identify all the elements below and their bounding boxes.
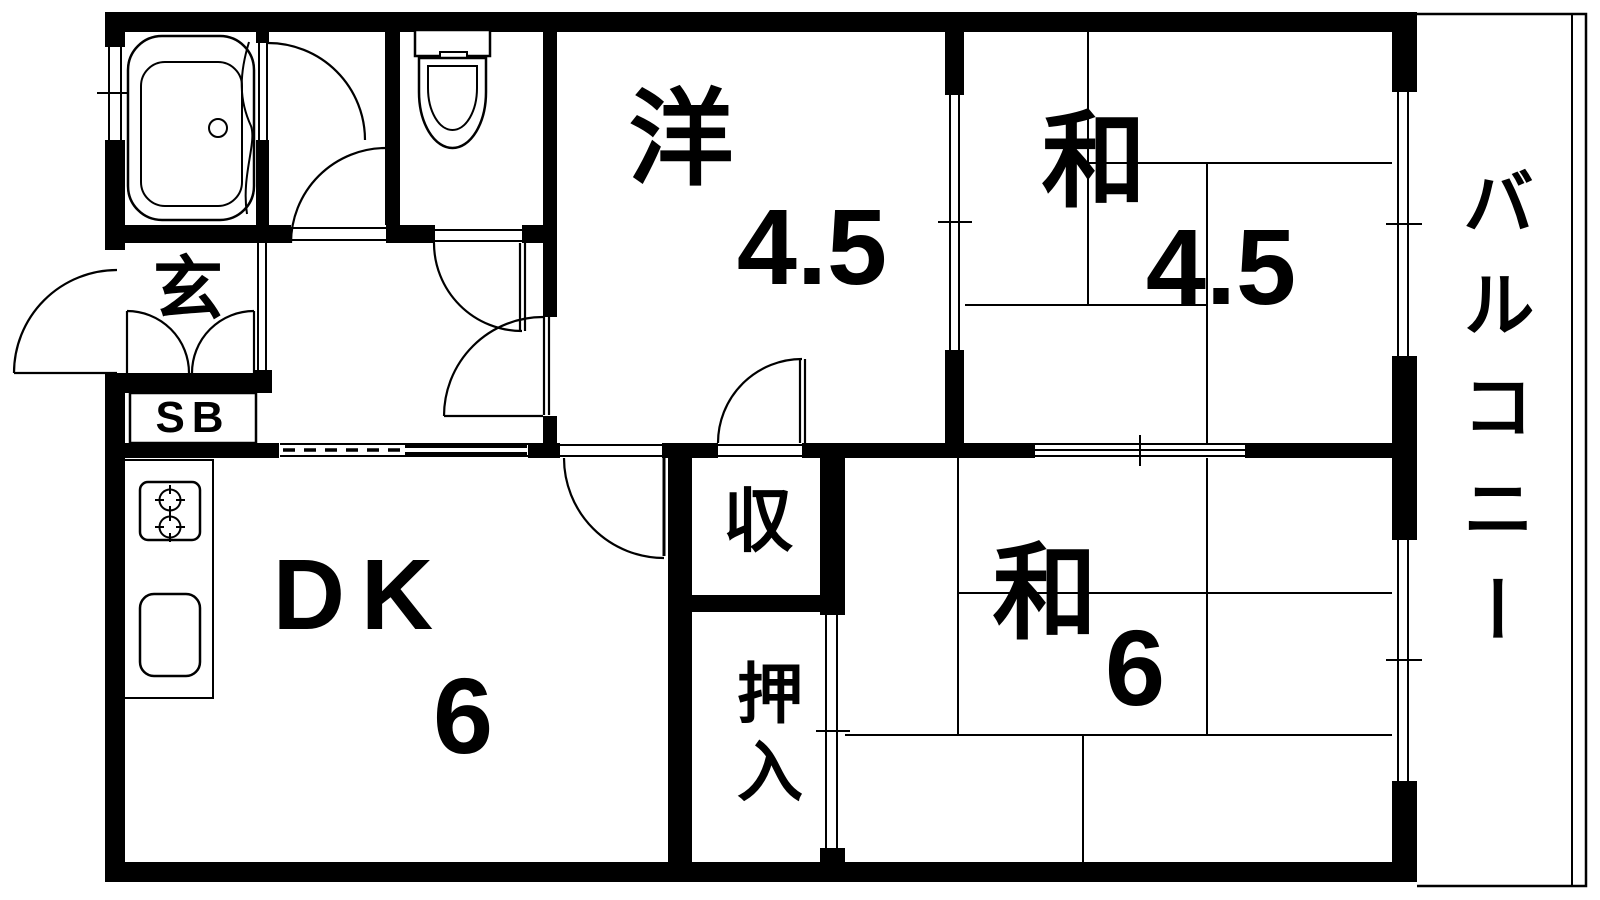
wall-right — [1392, 781, 1417, 882]
room-label-japanese-upper: 和 — [1041, 110, 1146, 215]
stove-burners-icon — [140, 482, 200, 542]
room-label-japanese-lower: 和 — [992, 542, 1097, 647]
wall-right — [1392, 12, 1417, 92]
entrance-door-icon — [14, 270, 117, 373]
dk-boundary-opening — [280, 444, 528, 456]
wall-western-left — [543, 12, 557, 317]
room-size-western: 4.5 — [737, 193, 887, 301]
closet-fusuma-icon — [816, 615, 850, 848]
japanese-rooms-sliding-door-icon — [1035, 435, 1245, 466]
wall-storage-closet-divider — [692, 595, 820, 612]
wall-western-japanese — [945, 32, 964, 95]
floor-plan: 洋 4.5 和 4.5 和 6 DK 6 玄 SB 収 押入 バルコニー — [0, 0, 1600, 900]
wall-bottom — [105, 862, 1417, 882]
wall-storage-right — [820, 443, 845, 615]
wall-storage-right — [820, 848, 845, 862]
wall-storage-left — [668, 443, 692, 862]
room-label-genkan: 玄 — [153, 254, 223, 324]
room-size-dk: 6 — [433, 662, 493, 770]
wall-bath-bottom — [105, 225, 291, 243]
genkan-step-line — [258, 243, 266, 370]
wall-top — [105, 12, 1417, 32]
wall-western-japanese — [945, 350, 964, 443]
room-label-balcony: バルコニー — [1455, 165, 1527, 675]
room-size-japanese-upper: 4.5 — [1146, 213, 1296, 321]
room-size-japanese-lower: 6 — [1105, 614, 1165, 722]
room-label-western: 洋 — [628, 88, 733, 193]
shoe-box-label: SB — [155, 396, 230, 440]
wall-western-left — [543, 416, 557, 443]
dk-door-icon — [564, 458, 664, 558]
balcony-window-lower-icon — [1386, 540, 1422, 781]
dk-doorway — [560, 445, 662, 456]
storage-doorway — [718, 445, 802, 456]
kitchen-sink-icon — [140, 594, 200, 676]
toilet-door-icon — [434, 243, 525, 331]
toilet-doorway — [435, 230, 522, 241]
bathroom-door-icon — [268, 43, 365, 140]
wall-genkan-bottom — [105, 373, 258, 393]
toilet-icon — [415, 30, 490, 148]
wall-bath-bottom — [386, 225, 435, 243]
room-label-storage: 収 — [723, 486, 793, 556]
room-label-closet: 押入 — [732, 659, 798, 815]
balcony-window-upper-icon — [1386, 92, 1422, 356]
storage-door-icon — [718, 359, 805, 443]
wall-bath-divider — [256, 32, 269, 43]
wall-mid-divider — [1245, 443, 1417, 458]
room-label-dk: DK — [273, 545, 449, 645]
wall-bath-divider — [256, 140, 269, 225]
wall-left — [105, 32, 125, 47]
wall-toilet-left — [385, 12, 400, 225]
bathroom-doorway — [259, 43, 267, 140]
western-room-door-icon — [444, 317, 549, 416]
wall-mid-divider — [105, 443, 279, 458]
western-japanese-window-icon — [938, 95, 972, 350]
washroom-doorway — [291, 228, 386, 240]
wall-mid-divider — [528, 443, 560, 458]
bathtub-icon — [128, 36, 254, 220]
